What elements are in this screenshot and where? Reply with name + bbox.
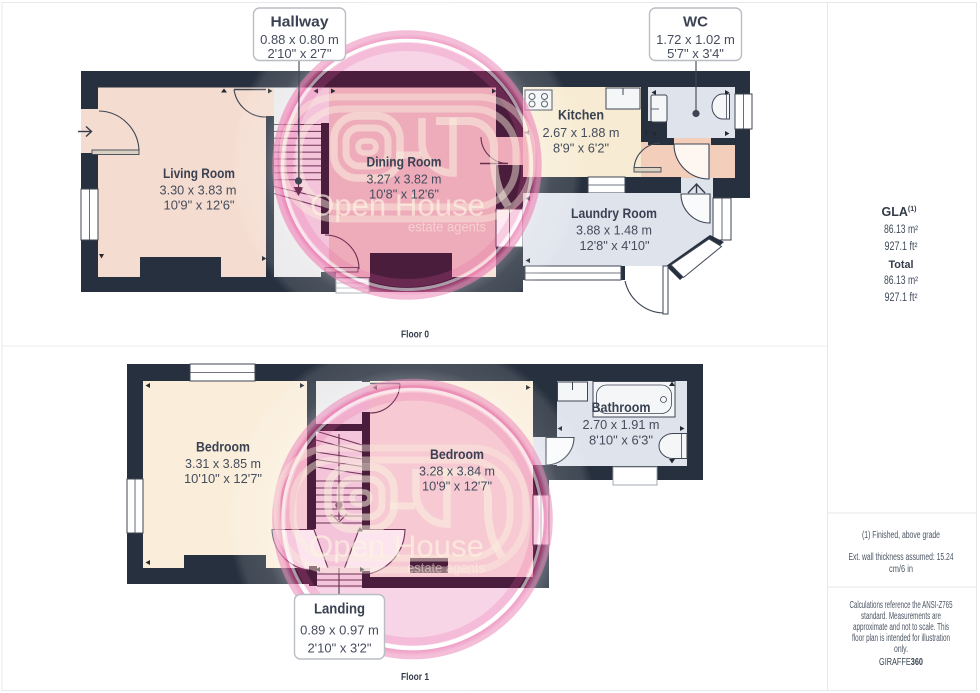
svg-text:927.1 ft²: 927.1 ft² [885, 292, 918, 304]
svg-text:10'9" x 12'6": 10'9" x 12'6" [164, 198, 235, 213]
svg-text:2'10" x 2'7": 2'10" x 2'7" [267, 46, 331, 61]
svg-text:1.72 x 1.02 m: 1.72 x 1.02 m [656, 32, 735, 47]
svg-text:10'8" x 12'6": 10'8" x 12'6" [369, 187, 439, 202]
svg-text:Bedroom: Bedroom [196, 439, 250, 455]
svg-text:Laundry Room: Laundry Room [571, 205, 657, 221]
svg-text:3.31 x 3.85 m: 3.31 x 3.85 m [185, 456, 261, 471]
svg-text:GIRAFFE360: GIRAFFE360 [879, 657, 923, 668]
svg-text:927.1 ft²: 927.1 ft² [885, 241, 918, 253]
svg-text:only.: only. [894, 644, 908, 655]
svg-text:2.67 x 1.88 m: 2.67 x 1.88 m [543, 125, 620, 140]
svg-text:WC: WC [683, 14, 708, 31]
svg-text:3.88 x 1.48 m: 3.88 x 1.48 m [576, 223, 652, 238]
svg-text:10'10" x 12'7": 10'10" x 12'7" [184, 471, 262, 486]
svg-text:3.30 x 3.83 m: 3.30 x 3.83 m [160, 183, 237, 198]
svg-text:3.27 x 3.82 m: 3.27 x 3.82 m [367, 172, 442, 187]
svg-text:0.88 x 0.80 m: 0.88 x 0.80 m [260, 32, 339, 47]
svg-text:Calculations reference the ANS: Calculations reference the ANSI-Z765 [850, 600, 953, 611]
svg-text:Floor 1: Floor 1 [401, 671, 429, 683]
svg-text:Ext. wall thickness assumed: 1: Ext. wall thickness assumed: 15.24 [849, 552, 954, 563]
svg-text:5'7" x 3'4": 5'7" x 3'4" [667, 46, 724, 61]
svg-text:86.13 m²: 86.13 m² [884, 275, 918, 287]
svg-text:Living Room: Living Room [163, 165, 235, 181]
svg-text:Bathroom: Bathroom [592, 399, 651, 415]
svg-text:Kitchen: Kitchen [558, 107, 604, 123]
svg-text:Landing: Landing [314, 601, 365, 618]
svg-text:12'8" x 4'10": 12'8" x 4'10" [580, 238, 650, 253]
svg-text:3.28 x 3.84 m: 3.28 x 3.84 m [419, 464, 495, 479]
svg-text:floor plan is intended for ill: floor plan is intended for illustration [852, 633, 950, 644]
svg-text:(1) Finished, above grade: (1) Finished, above grade [862, 530, 940, 541]
svg-text:Bedroom: Bedroom [430, 446, 484, 462]
svg-text:Total: Total [889, 259, 914, 271]
svg-text:Dining Room: Dining Room [367, 154, 442, 170]
svg-text:0.89 x 0.97 m: 0.89 x 0.97 m [300, 623, 379, 638]
svg-text:cm/6 in: cm/6 in [889, 564, 913, 575]
svg-text:Hallway: Hallway [271, 14, 330, 31]
svg-text:Floor 0: Floor 0 [401, 329, 429, 341]
svg-text:86.13 m²: 86.13 m² [884, 224, 918, 236]
svg-text:standard. Measurements are: standard. Measurements are [861, 611, 941, 622]
svg-text:8'10" x 6'3": 8'10" x 6'3" [589, 433, 653, 448]
svg-text:10'9" x 12'7": 10'9" x 12'7" [422, 479, 492, 494]
svg-text:2.70 x 1.91 m: 2.70 x 1.91 m [583, 417, 660, 432]
svg-text:approximate and not to scale.: approximate and not to scale. This [853, 622, 949, 633]
svg-text:8'9" x 6'2": 8'9" x 6'2" [553, 141, 609, 156]
svg-text:2'10" x 3'2": 2'10" x 3'2" [307, 641, 371, 656]
